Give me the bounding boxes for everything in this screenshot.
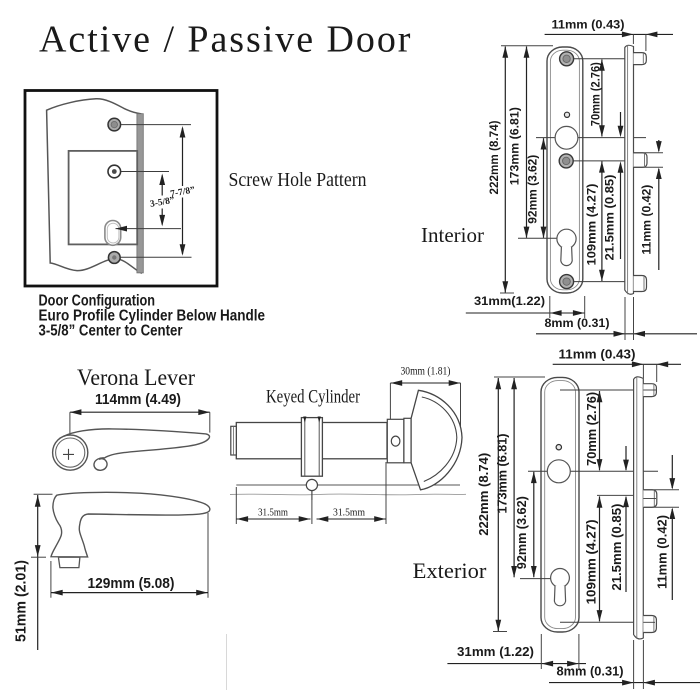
svg-text:109mm (4.27): 109mm (4.27) bbox=[584, 184, 598, 266]
svg-text:92mm (3.62): 92mm (3.62) bbox=[525, 155, 539, 224]
svg-text:3-5/8” Center to Center: 3-5/8” Center to Center bbox=[39, 322, 183, 339]
svg-text:Screw Hole Pattern: Screw Hole Pattern bbox=[229, 170, 367, 191]
svg-text:222mm (8.74): 222mm (8.74) bbox=[487, 121, 501, 195]
svg-text:70mm (2.76): 70mm (2.76) bbox=[588, 62, 602, 126]
svg-text:51mm (2.01): 51mm (2.01) bbox=[14, 560, 30, 642]
svg-text:114mm (4.49): 114mm (4.49) bbox=[95, 392, 181, 408]
svg-text:21.5mm (0.85): 21.5mm (0.85) bbox=[602, 175, 616, 261]
svg-text:92mm (3.62): 92mm (3.62) bbox=[514, 496, 529, 569]
svg-text:Verona Lever: Verona Lever bbox=[77, 365, 195, 390]
svg-text:173mm (6.81): 173mm (6.81) bbox=[507, 107, 521, 185]
svg-text:8mm (0.31): 8mm (0.31) bbox=[545, 316, 610, 330]
svg-text:Keyed Cylinder: Keyed Cylinder bbox=[266, 387, 361, 408]
svg-text:173mm (6.81): 173mm (6.81) bbox=[494, 434, 509, 514]
svg-text:Active / Passive Door: Active / Passive Door bbox=[39, 19, 412, 61]
svg-text:109mm (4.27): 109mm (4.27) bbox=[583, 519, 598, 604]
svg-text:222mm (8.74): 222mm (8.74) bbox=[476, 453, 491, 536]
svg-text:21.5mm (0.85): 21.5mm (0.85) bbox=[609, 504, 624, 591]
svg-text:11mm (0.42): 11mm (0.42) bbox=[655, 515, 670, 589]
svg-text:11mm (0.42): 11mm (0.42) bbox=[639, 185, 653, 255]
svg-text:8mm (0.31): 8mm (0.31) bbox=[557, 664, 624, 679]
svg-text:31.5mm: 31.5mm bbox=[258, 507, 288, 519]
svg-text:129mm (5.08): 129mm (5.08) bbox=[88, 576, 175, 592]
svg-text:30mm (1.81): 30mm (1.81) bbox=[401, 366, 451, 378]
svg-text:Interior: Interior bbox=[421, 223, 484, 247]
svg-text:Exterior: Exterior bbox=[413, 558, 487, 583]
svg-text:70mm (2.76): 70mm (2.76) bbox=[584, 392, 599, 466]
svg-text:31mm(1.22): 31mm(1.22) bbox=[474, 294, 545, 308]
svg-text:11mm (0.43): 11mm (0.43) bbox=[552, 17, 625, 31]
svg-text:31mm (1.22): 31mm (1.22) bbox=[457, 644, 534, 659]
svg-text:31.5mm: 31.5mm bbox=[333, 507, 365, 519]
svg-text:11mm (0.43): 11mm (0.43) bbox=[559, 347, 636, 362]
